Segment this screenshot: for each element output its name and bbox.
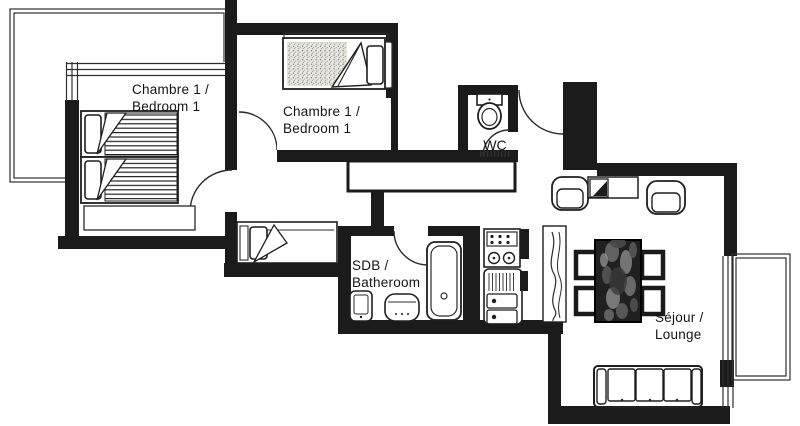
dresser [84, 206, 195, 230]
hallway-closet [348, 161, 515, 191]
wall-segment [58, 236, 238, 249]
tv-unit [588, 177, 638, 198]
armrest [597, 369, 606, 404]
radiator [350, 291, 372, 321]
floor-plan-canvas: Chambre 1 / Bedroom 1 Chambre 1 / Bedroo… [0, 0, 800, 426]
curtain-panel [543, 226, 566, 322]
toilet [477, 94, 502, 129]
bedroom-left-label-line1: Chambre 1 / [132, 82, 209, 97]
lounge-label-line1: Séjour / [655, 310, 704, 325]
wall-segment [224, 263, 348, 277]
wall-segment [371, 190, 384, 233]
lounge-label-line2: Lounge [655, 327, 702, 342]
dining-chair [576, 252, 597, 278]
sink-side-panel [520, 271, 528, 291]
single-bed-alcove [237, 222, 337, 263]
balcony-outline [732, 254, 790, 380]
wall-segment [428, 226, 464, 236]
wall-segment [548, 406, 730, 424]
wall-segment [508, 85, 518, 132]
washbasin [385, 294, 419, 321]
armchair-left [552, 177, 588, 210]
seat-cushion [557, 189, 583, 208]
wall-segment [338, 226, 394, 236]
bathtub [427, 242, 461, 320]
bathroom-label-line1: SDB / [352, 258, 389, 273]
bathroom-door-swing [394, 231, 428, 265]
armchair-right [647, 181, 685, 214]
balcony-outline-inner [736, 258, 786, 376]
wall-segment [548, 326, 561, 411]
bedroom-middle-door-swing [239, 112, 277, 150]
wall-segment [458, 85, 468, 162]
seat-cushion [664, 369, 691, 401]
seat-cushion [652, 193, 680, 212]
wall-segment [65, 100, 79, 249]
dining-chair [576, 288, 597, 314]
bedroom-middle-label-line1: Chambre 1 / [283, 104, 360, 119]
entrance-door-swing [519, 90, 563, 134]
kitchen-hob [484, 229, 529, 267]
bedroom-middle-label-line2: Bedroom 1 [283, 121, 351, 136]
twin-bed-b [81, 157, 178, 203]
twin-bed-a [81, 111, 178, 157]
bed-bedroom-middle [283, 33, 392, 89]
bedroom-left-label-line2: Bedroom 1 [132, 99, 200, 114]
wall-segment [597, 163, 737, 176]
wall-segment [338, 320, 563, 334]
dining-chair [642, 252, 663, 278]
kitchen-sink [484, 269, 528, 324]
seat-cushion [636, 369, 663, 401]
sofa [594, 366, 702, 407]
wall-segment [724, 163, 737, 256]
hob-side-panel [520, 229, 529, 259]
bathroom-label-line2: Batheroom [352, 275, 420, 290]
wall-segment [563, 82, 597, 170]
seat-cushion [608, 369, 635, 401]
floor-plan: Chambre 1 / Bedroom 1 Chambre 1 / Bedroo… [0, 0, 800, 426]
dining-set [576, 238, 663, 322]
wc-label: WC [483, 137, 506, 153]
pillow [367, 46, 383, 84]
armrest [692, 369, 701, 404]
balcony-right [732, 254, 790, 380]
wall-segment [463, 226, 480, 326]
